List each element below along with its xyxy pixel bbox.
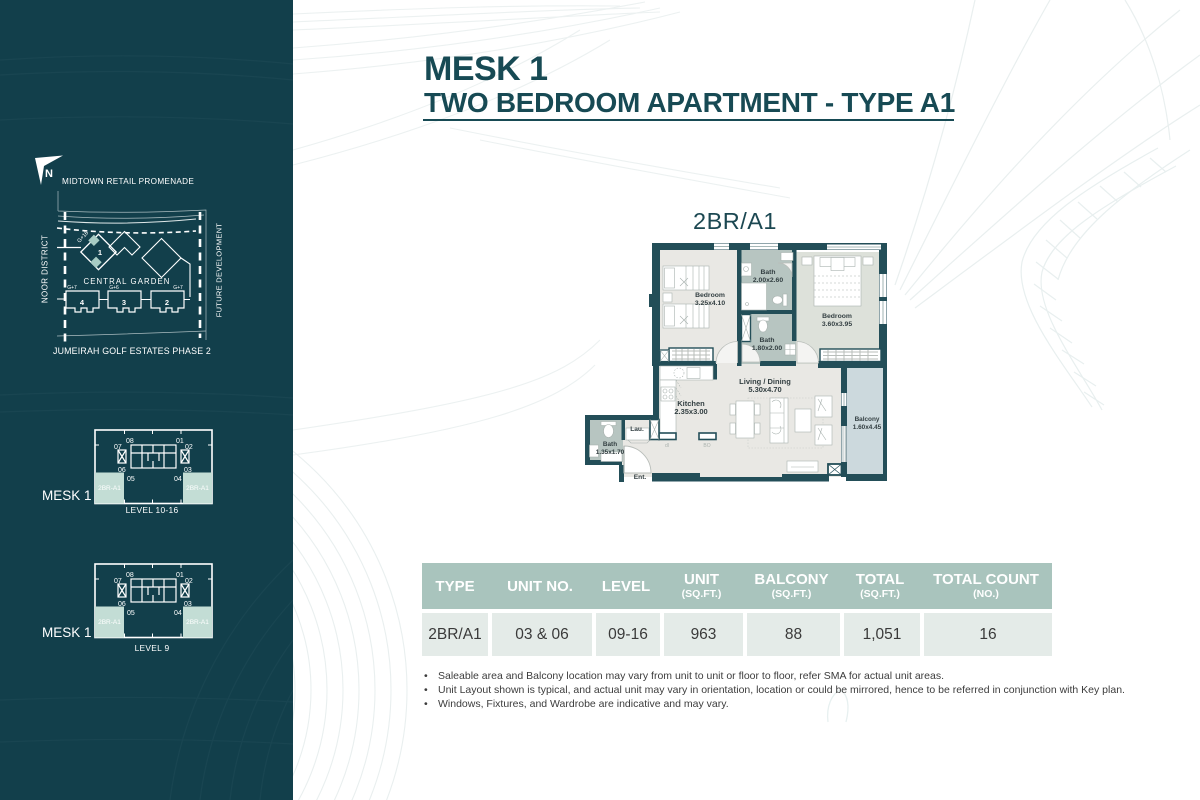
svg-text:Lau.: Lau. [630,426,644,433]
svg-text:G+7: G+7 [67,285,77,291]
svg-text:1: 1 [98,248,102,257]
svg-text:03: 03 [184,467,192,474]
svg-text:G+16: G+16 [76,230,90,244]
svg-text:Bath: Bath [603,441,617,448]
svg-text:1.80x2.00: 1.80x2.00 [752,345,782,352]
svg-text:Bath: Bath [759,337,774,344]
svg-text:Balcony: Balcony [855,416,880,423]
svg-text:G+6: G+6 [109,285,119,291]
svg-text:G+7: G+7 [173,285,183,291]
svg-text:06: 06 [118,467,126,474]
svg-text:Ent.: Ent. [634,474,647,481]
svg-text:2BR-A1: 2BR-A1 [98,485,121,492]
svg-text:3.60x3.95: 3.60x3.95 [822,321,852,328]
svg-text:08: 08 [126,438,134,445]
svg-text:3.25x4.10: 3.25x4.10 [695,300,725,307]
svg-text:Bath: Bath [760,269,775,276]
svg-text:1.35x1.70: 1.35x1.70 [596,449,625,456]
svg-text:04: 04 [174,476,182,483]
svg-text:N: N [45,168,53,180]
svg-text:2.35x3.00: 2.35x3.00 [674,407,707,416]
svg-text:07: 07 [114,444,122,451]
svg-text:3: 3 [122,298,126,307]
svg-text:BO: BO [703,443,710,449]
svg-text:2BR-A1: 2BR-A1 [186,485,209,492]
svg-text:05: 05 [127,476,135,483]
svg-text:Bedroom: Bedroom [822,313,852,320]
svg-text:CENTRAL GARDEN: CENTRAL GARDEN [83,277,170,286]
svg-text:Bedroom: Bedroom [695,292,725,299]
svg-text:02: 02 [185,444,193,451]
svg-text:01: 01 [176,438,184,445]
svg-text:4: 4 [80,298,85,307]
svg-text:2.00x2.60: 2.00x2.60 [753,277,783,284]
svg-text:2: 2 [165,298,169,307]
svg-text:5.30x4.70: 5.30x4.70 [748,385,781,394]
svg-text:dl: dl [665,443,669,449]
svg-text:1.60x4.45: 1.60x4.45 [853,424,882,431]
